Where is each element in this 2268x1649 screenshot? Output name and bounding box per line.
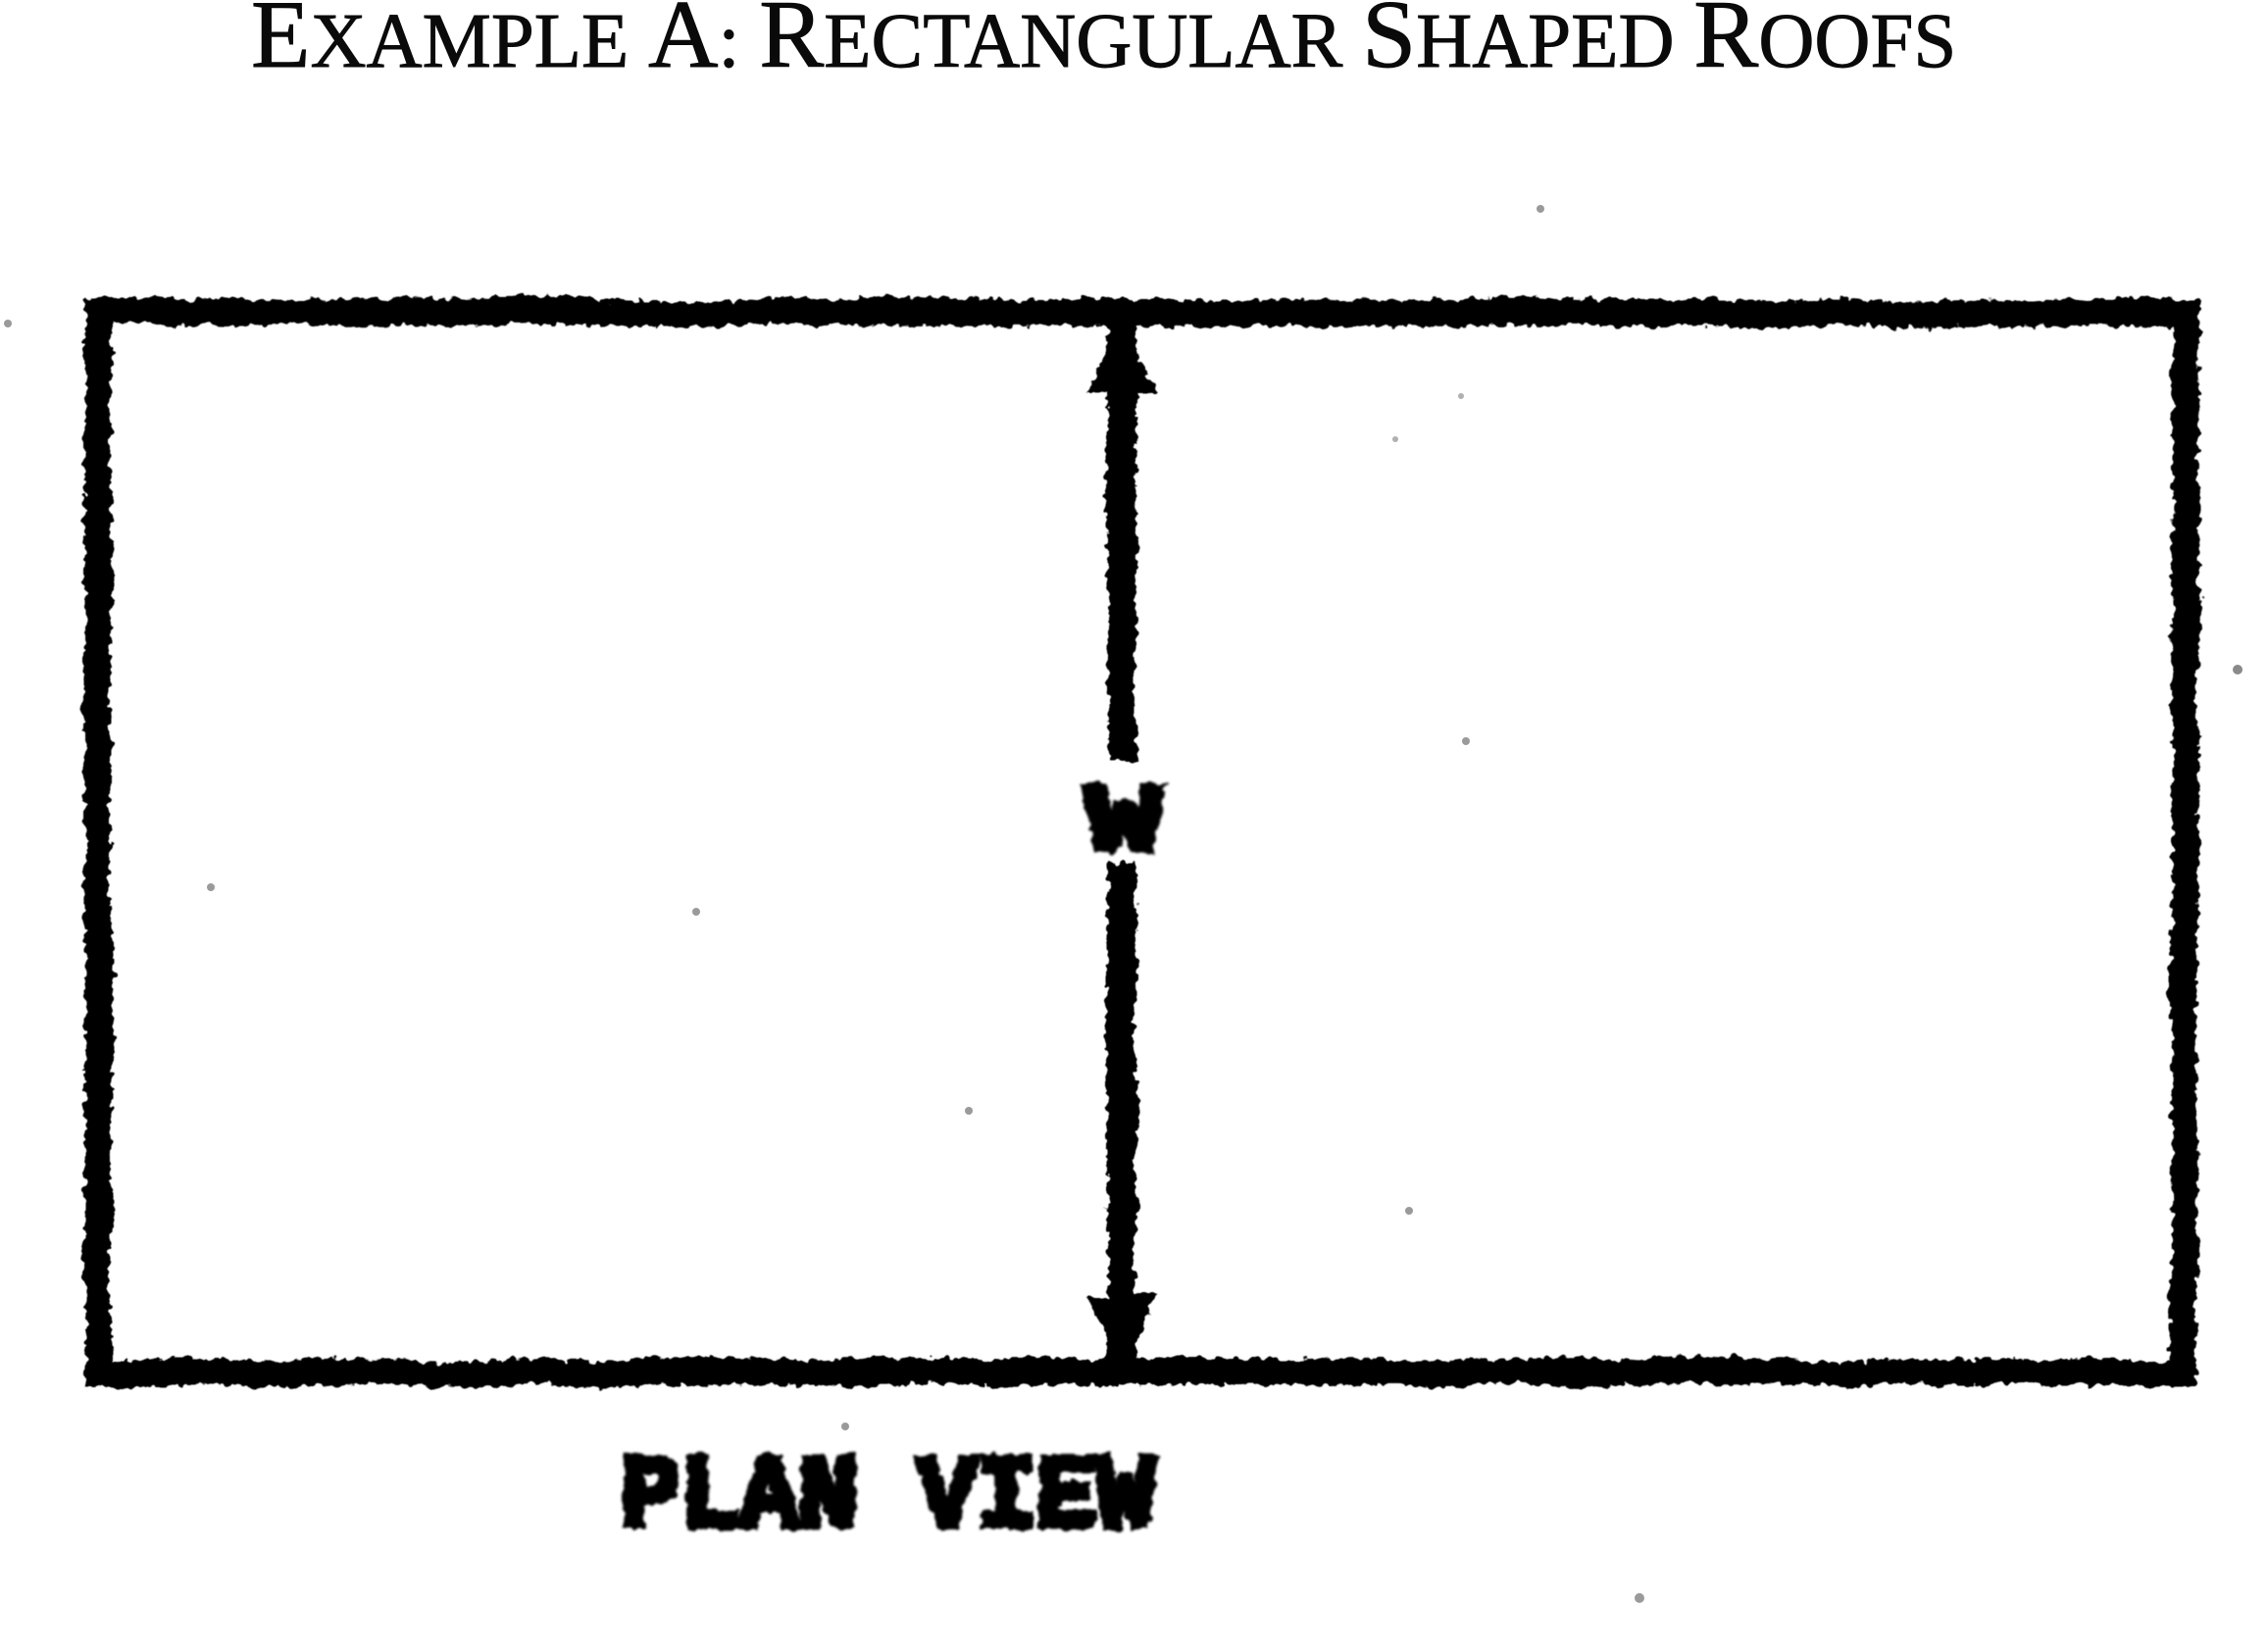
svg-text:W: W bbox=[1086, 771, 1162, 877]
svg-text:EXAMPLE A: RECTANGULAR SHAPED: EXAMPLE A: RECTANGULAR SHAPED ROOFS bbox=[251, 0, 1956, 88]
svg-text:PLAN VIEW: PLAN VIEW bbox=[621, 1440, 1155, 1557]
